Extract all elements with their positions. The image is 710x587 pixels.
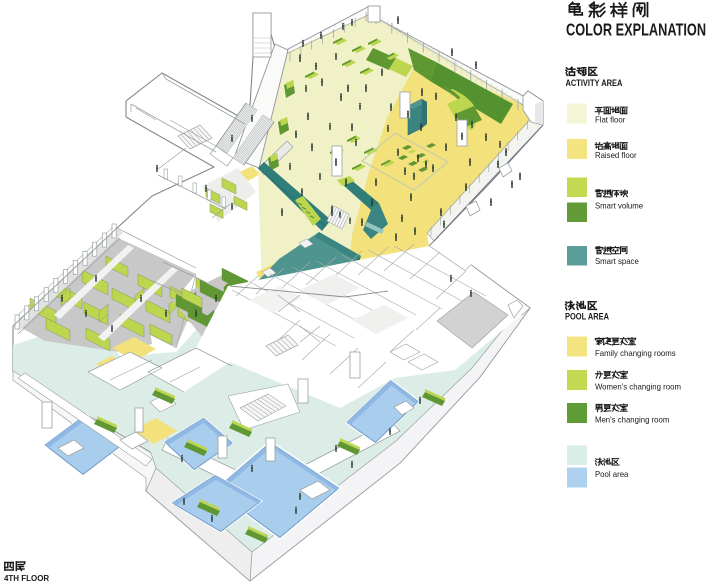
svg-text:Raised floor: Raised floor [595,151,637,160]
svg-text:Smart volume: Smart volume [595,201,644,210]
svg-text:COLOR EXPLANATION: COLOR EXPLANATION [566,21,706,40]
svg-text:4TH FLOOR: 4TH FLOOR [4,574,49,583]
svg-text:Family changing rooms: Family changing rooms [595,349,676,358]
svg-text:Smart space: Smart space [595,257,639,266]
svg-text:ACTIVITY AREA: ACTIVITY AREA [566,78,623,88]
svg-text:Flat floor: Flat floor [595,115,626,124]
svg-text:Men's changing room: Men's changing room [595,415,670,424]
svg-text:Pool area: Pool area [595,470,629,479]
svg-text:POOL AREA: POOL AREA [565,312,609,322]
svg-text:Women's changing room: Women's changing room [595,382,681,391]
